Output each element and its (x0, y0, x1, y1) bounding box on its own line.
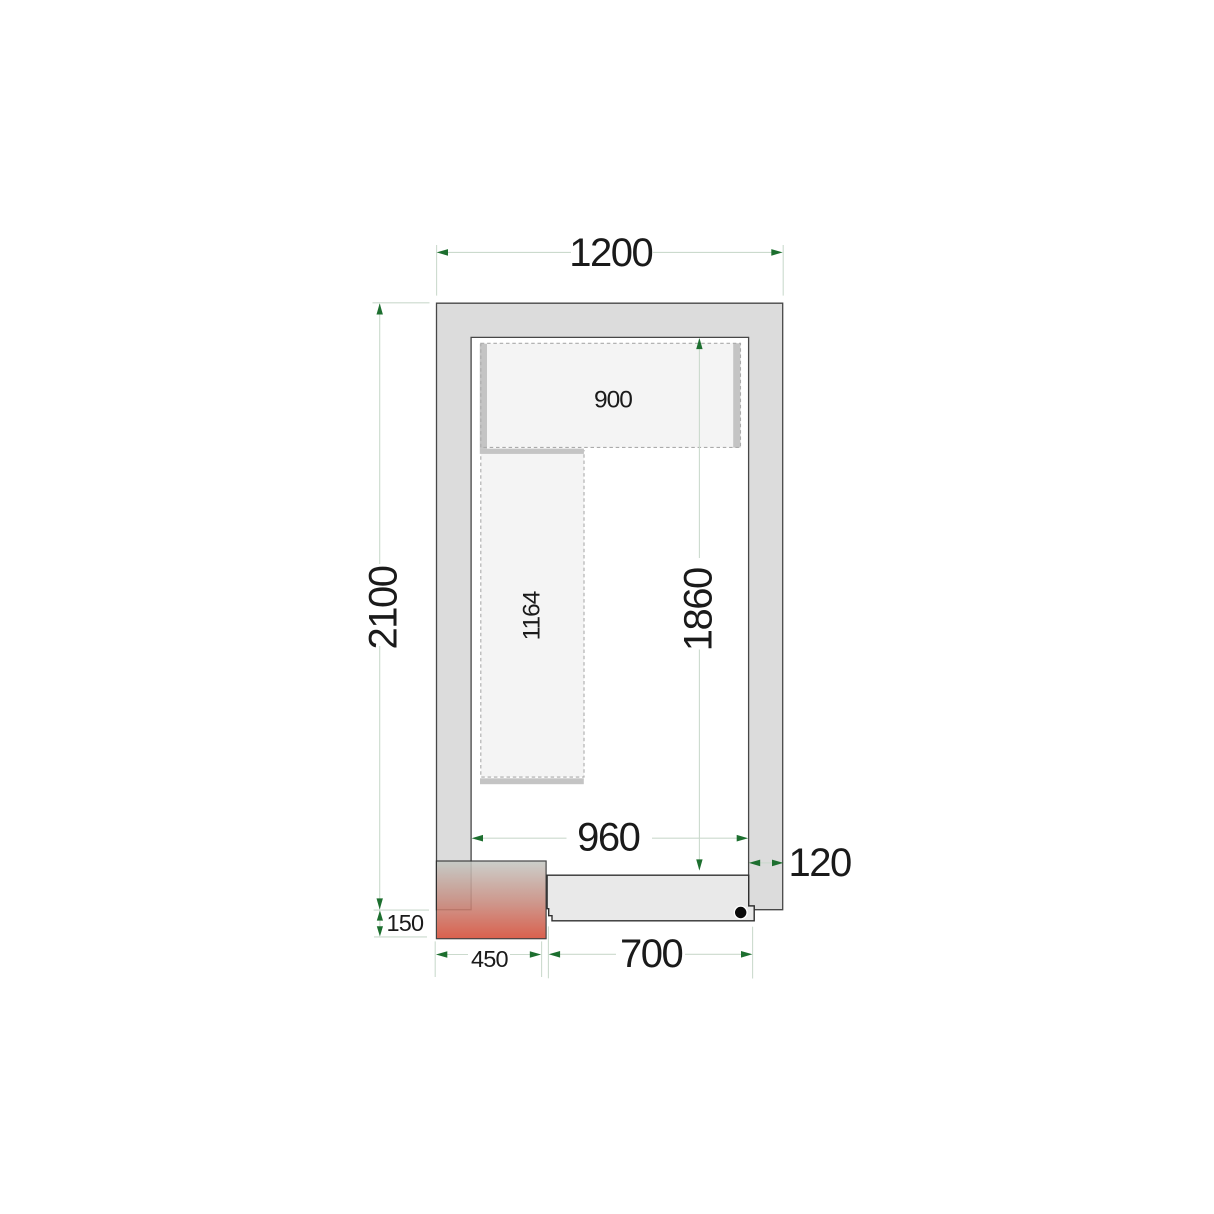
svg-text:1860: 1860 (677, 568, 721, 651)
svg-text:1164: 1164 (518, 591, 545, 640)
svg-text:700: 700 (620, 932, 682, 976)
svg-text:900: 900 (594, 387, 632, 414)
svg-text:1200: 1200 (569, 231, 652, 275)
svg-text:150: 150 (387, 910, 425, 936)
svg-text:2100: 2100 (362, 566, 406, 649)
svg-text:960: 960 (577, 816, 639, 860)
svg-text:450: 450 (471, 946, 509, 972)
svg-text:120: 120 (789, 841, 851, 885)
